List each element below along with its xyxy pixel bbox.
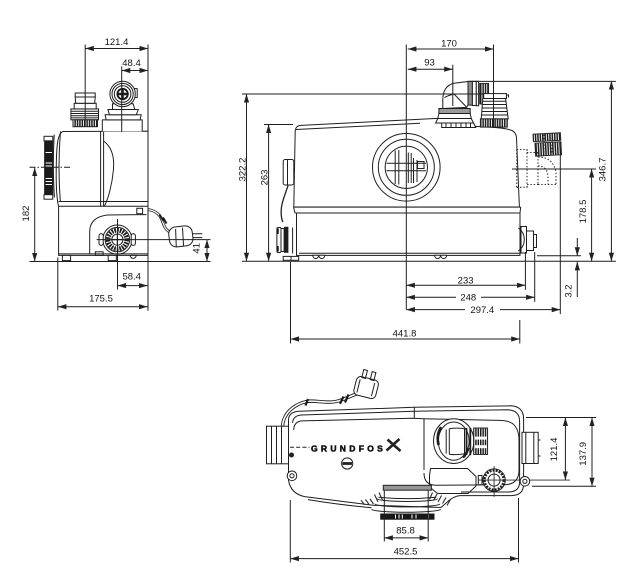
svg-text:441.8: 441.8: [393, 328, 417, 339]
svg-text:93: 93: [424, 57, 435, 68]
svg-text:85.8: 85.8: [396, 526, 415, 537]
svg-text:263: 263: [259, 170, 270, 186]
svg-text:41: 41: [191, 243, 202, 254]
svg-text:178.5: 178.5: [578, 200, 589, 224]
svg-text:297.4: 297.4: [470, 305, 494, 316]
svg-text:3.2: 3.2: [563, 284, 574, 297]
svg-text:248: 248: [460, 293, 476, 304]
svg-text:233: 233: [458, 275, 474, 286]
svg-text:58.4: 58.4: [122, 271, 141, 282]
svg-text:137.9: 137.9: [578, 442, 589, 466]
svg-text:48.4: 48.4: [122, 58, 141, 69]
svg-text:121.4: 121.4: [105, 37, 129, 48]
svg-text:175.5: 175.5: [89, 293, 113, 304]
svg-text:322.2: 322.2: [237, 158, 248, 182]
svg-text:121.4: 121.4: [549, 438, 560, 462]
svg-text:346.7: 346.7: [597, 158, 608, 182]
svg-text:182: 182: [21, 206, 32, 222]
svg-text:452.5: 452.5: [394, 547, 418, 558]
svg-text:170: 170: [441, 38, 457, 49]
